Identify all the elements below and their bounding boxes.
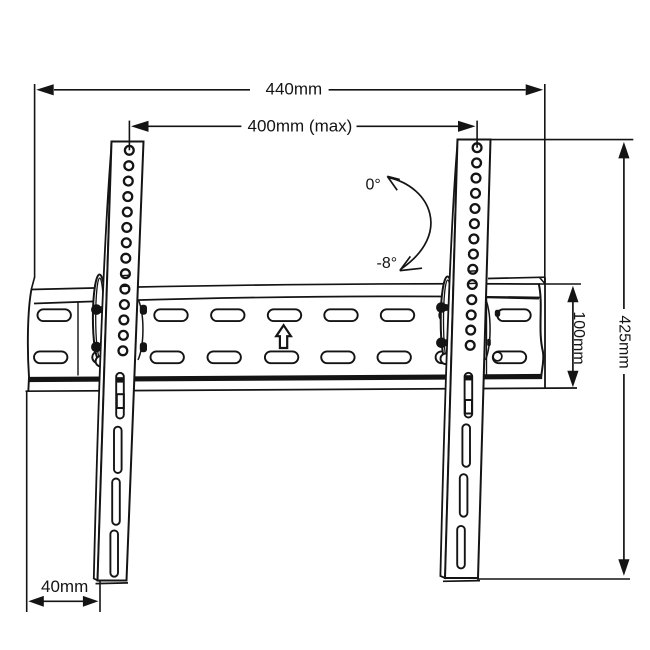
svg-text:-8°: -8° — [377, 255, 398, 272]
svg-text:425mm: 425mm — [616, 315, 633, 368]
svg-text:40mm: 40mm — [41, 577, 88, 596]
svg-text:440mm: 440mm — [266, 80, 323, 99]
svg-text:400mm (max): 400mm (max) — [248, 116, 353, 135]
svg-text:0°: 0° — [366, 176, 381, 193]
svg-text:100mm: 100mm — [570, 311, 587, 364]
